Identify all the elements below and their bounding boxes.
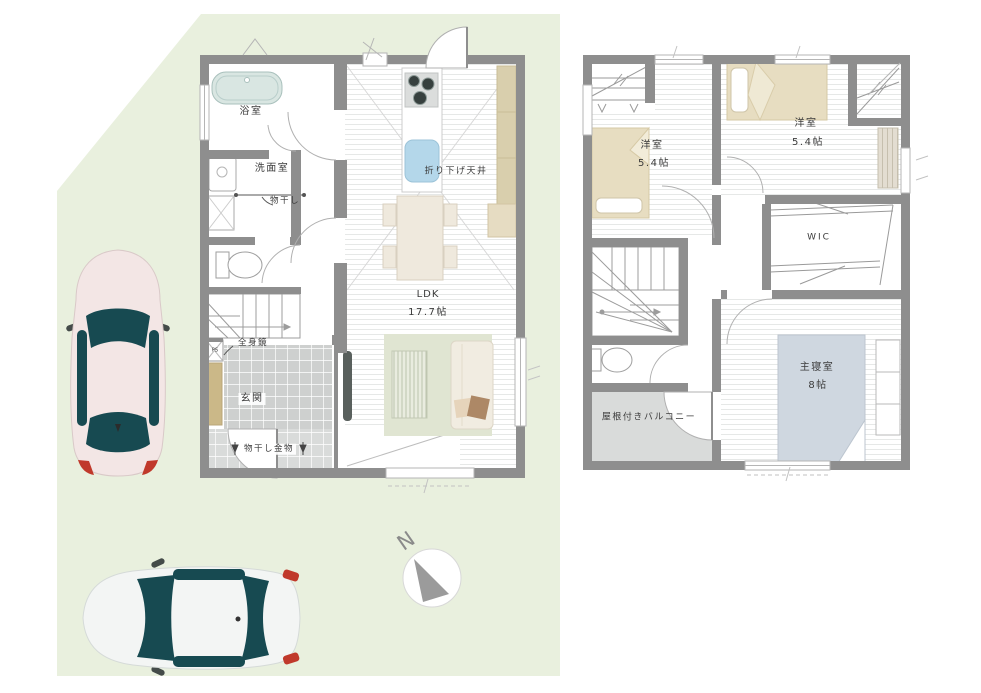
room-size-ldk: 17.7帖 xyxy=(408,308,448,318)
low-table-icon xyxy=(392,351,427,418)
toilet2-icon xyxy=(590,348,632,372)
floor1-plan xyxy=(200,27,540,493)
room-label-master: 主寝室 xyxy=(800,363,835,373)
floorplan-page: 浴室 洗面室 物干し 折り下げ天井 LDK 17.7帖 全身鏡 PS 玄関 物干… xyxy=(0,0,981,693)
room-label-bedroom-right: 洋室 xyxy=(795,119,818,129)
room-size-master: 8帖 xyxy=(808,381,827,391)
counter-strip xyxy=(878,128,898,188)
room-label-wic: WIC xyxy=(807,234,831,243)
tv-icon xyxy=(343,351,352,421)
room-label-entrance: 玄関 xyxy=(239,393,266,405)
stairs-icon xyxy=(205,294,300,338)
label-pipe-space: PS xyxy=(212,349,218,354)
room-size-bedroom-right: 5.4帖 xyxy=(792,138,824,148)
stairs2-icon xyxy=(592,247,679,336)
toilet-icon xyxy=(216,252,262,278)
car-2-icon xyxy=(83,557,300,676)
north-arrow-icon xyxy=(403,549,461,607)
room-label-bath: 浴室 xyxy=(240,107,263,117)
plan-drawing xyxy=(0,0,981,693)
bed-right-icon xyxy=(727,62,827,120)
entrance-tile-floor xyxy=(224,345,332,429)
room-size-bedroom-left: 5.4帖 xyxy=(638,159,670,169)
room-label-bedroom-left: 洋室 xyxy=(641,141,664,151)
room-label-balcony: 屋根付きバルコニー xyxy=(602,414,696,423)
washstand-icon xyxy=(209,157,236,191)
kitchen-cabinet-icon xyxy=(497,66,516,204)
room-label-washroom: 洗面室 xyxy=(255,164,290,174)
label-lowered-ceiling: 折り下げ天井 xyxy=(424,168,487,177)
car-1-icon xyxy=(65,250,170,476)
label-laundry-pole: 物干し xyxy=(270,197,300,206)
room-label-ldk: LDK xyxy=(417,290,440,300)
kitchen-door-arc xyxy=(426,27,467,68)
label-laundry-hardware: 物干し金物 xyxy=(242,444,296,455)
sofa-icon xyxy=(451,341,493,429)
label-full-mirror: 全身鏡 xyxy=(238,339,268,348)
